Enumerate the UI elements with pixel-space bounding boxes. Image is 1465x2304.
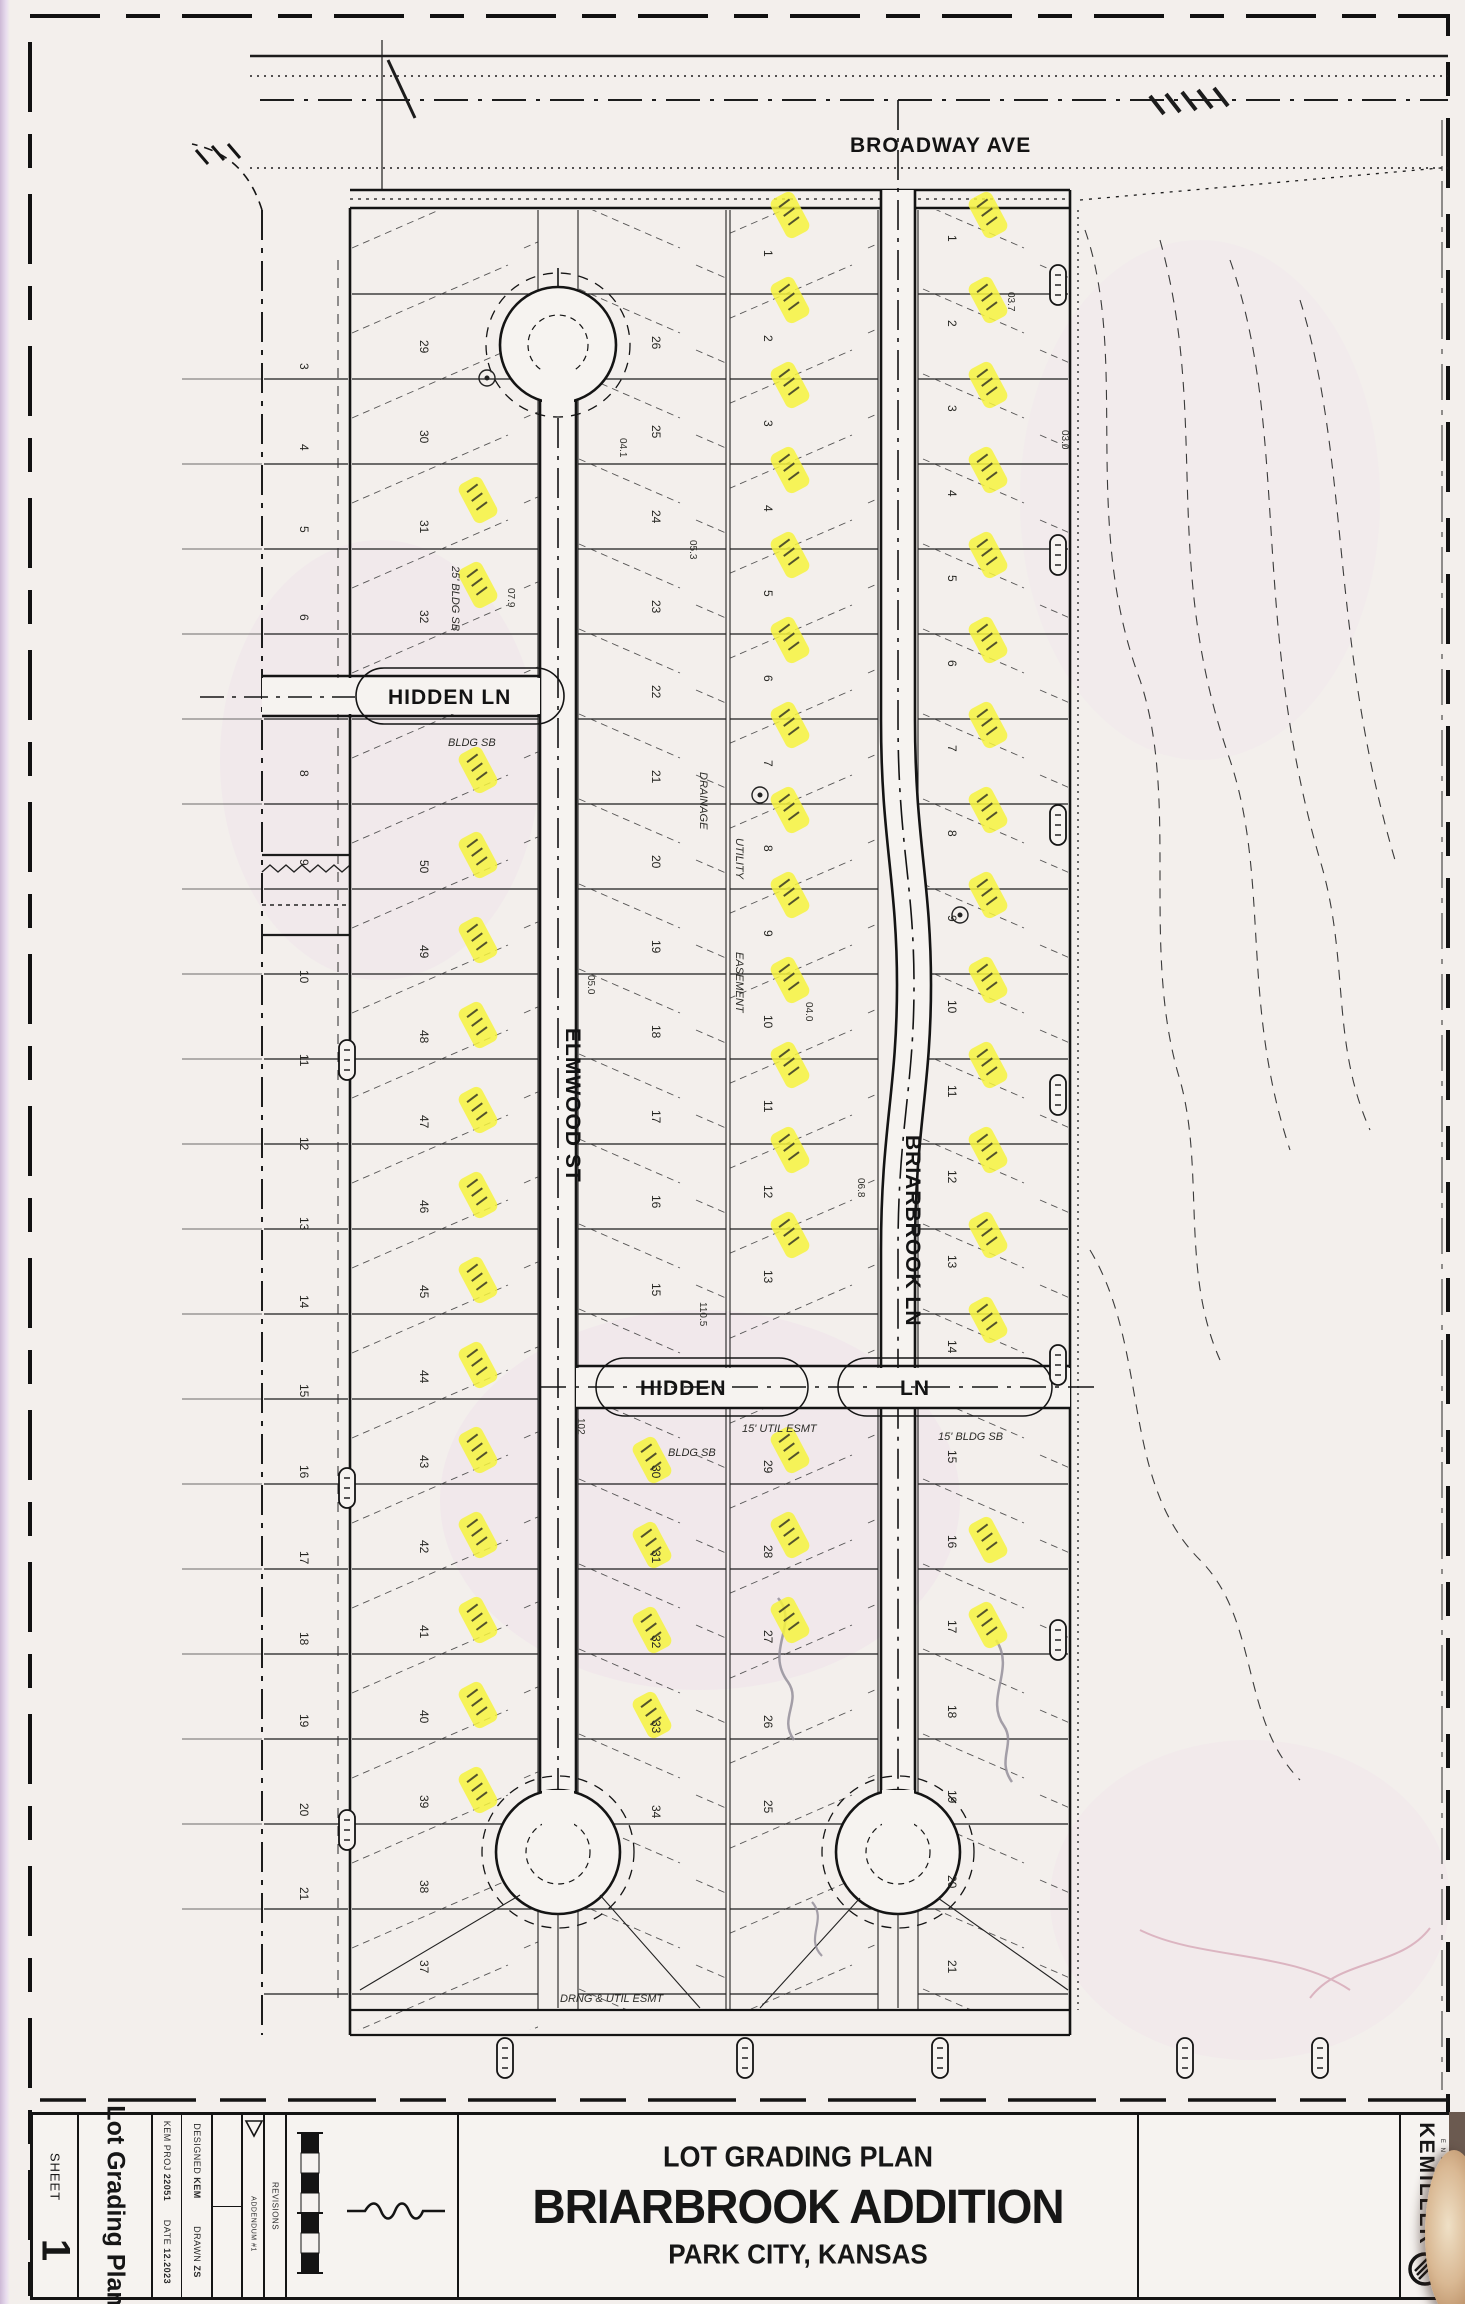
adjacent-lot-number: 15 xyxy=(297,1384,311,1398)
lot-number: 45 xyxy=(417,1285,431,1299)
lot-number: 11 xyxy=(945,1085,959,1098)
title-block: SHEET 1 Lot Grading Plan KEM PROJ 22051 … xyxy=(30,2112,1454,2300)
lot-number: 4 xyxy=(761,505,775,512)
lot-number: 15 xyxy=(649,1283,663,1297)
lot-number: 21 xyxy=(649,770,663,784)
lot-number: 14 xyxy=(945,1340,959,1354)
lot-number: 4 xyxy=(945,490,959,497)
sheet-cell: SHEET 1 xyxy=(33,2115,79,2297)
north-arrow-squiggle xyxy=(347,2204,445,2219)
lot-number: 27 xyxy=(761,1630,775,1644)
ann-drng-util: DRNG & UTIL ESMT xyxy=(560,1993,664,2005)
elevation-oval xyxy=(1177,2038,1193,2078)
scale-cell xyxy=(287,2115,459,2297)
elevation-oval xyxy=(339,1040,355,1080)
adjacent-lot-number: 12 xyxy=(297,1137,311,1151)
adjacent-lot-number: 13 xyxy=(297,1217,311,1231)
street-label-hidden-mid-1: HIDDEN xyxy=(640,1377,727,1400)
lot-grid xyxy=(352,210,1068,2030)
street-label-hidden-mid-2: LN xyxy=(900,1377,930,1400)
scanned-sheet: BROADWAY AVE xyxy=(0,0,1465,2304)
west-adjacent-lots xyxy=(182,210,350,2035)
street-label-hidden-west: HIDDEN LN xyxy=(388,686,511,709)
lot-number: 7 xyxy=(945,745,959,752)
ann-bldg-sb2: BLDG SB xyxy=(668,1447,716,1459)
title-text-cell: LOT GRADING PLAN BRIARBROOK ADDITION PAR… xyxy=(459,2115,1139,2297)
lot-number: 1 xyxy=(761,250,775,257)
lot-number: 16 xyxy=(649,1195,663,1209)
lot-number: 21 xyxy=(945,1960,959,1974)
lot-number: 13 xyxy=(945,1255,959,1269)
spot-elevation: 03.0 xyxy=(1059,430,1070,450)
date-label: DATE xyxy=(162,2219,172,2244)
lot-number: 26 xyxy=(649,336,663,350)
designed-label: DESIGNED xyxy=(192,2123,202,2174)
spot-elevation: 110.5 xyxy=(697,1302,708,1327)
elevation-oval xyxy=(1050,1345,1066,1385)
lot-number: 11 xyxy=(761,1100,775,1113)
elevation-oval xyxy=(339,1810,355,1850)
blank-cell xyxy=(1139,2115,1401,2297)
ann-drainage: DRAINAGE xyxy=(697,772,709,830)
lot-number: 19 xyxy=(649,940,663,954)
adjacent-lot-number: 14 xyxy=(297,1295,311,1309)
lot-number: 32 xyxy=(649,1635,663,1649)
adjacent-lot-number: 18 xyxy=(297,1632,311,1646)
lot-number: 18 xyxy=(945,1705,959,1719)
adjacent-lot-number: 17 xyxy=(297,1551,311,1565)
lot-number: 6 xyxy=(761,675,775,682)
lot-number: 17 xyxy=(945,1620,959,1634)
addendum-text: ADDENDUM #1 xyxy=(250,2196,257,2252)
adjacent-lot-number: 11 xyxy=(297,1054,311,1067)
lot-number: 32 xyxy=(417,610,431,624)
ann-util-esmt: 15' UTIL ESMT xyxy=(742,1423,818,1435)
adjacent-lot-number: 16 xyxy=(297,1465,311,1479)
lot-number: 49 xyxy=(417,945,431,959)
adjacent-lot-number: 9 xyxy=(297,859,311,866)
lot-number: 10 xyxy=(761,1015,775,1029)
elevation-oval xyxy=(1312,2038,1328,2078)
plan-location: PARK CITY, KANSAS xyxy=(668,2238,928,2271)
elevation-oval xyxy=(1050,535,1066,575)
lot-number: 39 xyxy=(417,1795,431,1809)
lot-number: 33 xyxy=(649,1720,663,1734)
lot-number: 26 xyxy=(761,1715,775,1729)
elevation-oval xyxy=(932,2038,948,2078)
adjacent-lot-number: 4 xyxy=(297,444,311,451)
plan-subtitle: LOT GRADING PLAN xyxy=(663,2141,933,2174)
lot-number: 6 xyxy=(945,660,959,667)
lot-number: 25 xyxy=(649,425,663,439)
elevation-oval xyxy=(1050,1075,1066,1115)
spot-elevation: 04.1 xyxy=(617,438,628,458)
lot-number: 30 xyxy=(649,1465,663,1479)
lot-number: 24 xyxy=(649,510,663,524)
lot-number: 23 xyxy=(649,600,663,614)
street-hidden-mid xyxy=(540,1358,1100,1416)
lot-number: 20 xyxy=(649,855,663,869)
street-label-briarbrook: BRIARBROOK LN xyxy=(901,1135,924,1327)
lot-number: 15 xyxy=(945,1450,959,1464)
lot-number: 1 xyxy=(945,235,959,242)
lot-number: 44 xyxy=(417,1370,431,1384)
broadway-ave-corridor xyxy=(250,40,1448,200)
adjacent-lot-number: 10 xyxy=(297,970,311,984)
lot-number: 18 xyxy=(649,1025,663,1039)
lot-number: 42 xyxy=(417,1540,431,1554)
lot-number: 9 xyxy=(945,915,959,922)
adjacent-lot-number: 3 xyxy=(297,363,311,370)
elevation-oval xyxy=(339,1468,355,1508)
ann-bldg-sb: BLDG SB xyxy=(448,737,496,749)
spot-elevation: 102 xyxy=(575,1418,586,1435)
spot-elevation: 04.0 xyxy=(803,1002,814,1022)
spot-elevation: 05.0 xyxy=(585,975,596,995)
lot-number: 7 xyxy=(761,760,775,767)
lot-number: 17 xyxy=(649,1110,663,1124)
spot-elevation: 07.9 xyxy=(505,588,516,608)
revisions-label: REVISIONS xyxy=(271,2182,280,2230)
ann-utility: UTILITY xyxy=(733,838,745,880)
empty-rev-cell xyxy=(213,2115,243,2297)
lot-number: 3 xyxy=(945,405,959,412)
drawn-by: ZS xyxy=(192,2265,202,2278)
proj-label: KEM PROJ xyxy=(162,2120,172,2170)
addendum-triangle-icon xyxy=(244,2119,264,2139)
lot-number: 40 xyxy=(417,1710,431,1724)
lot-number: 16 xyxy=(945,1535,959,1549)
designed-by: KEM xyxy=(192,2177,202,2199)
lot-number: 12 xyxy=(761,1185,775,1199)
date-value: 12.2023 xyxy=(162,2248,172,2284)
street-label-elmwood: ELMWOOD ST xyxy=(561,1028,584,1183)
lot-number: 28 xyxy=(761,1545,775,1559)
lot-number: 41 xyxy=(417,1625,431,1639)
lot-number: 5 xyxy=(761,590,775,597)
lot-number: 19 xyxy=(945,1790,959,1804)
elevation-oval xyxy=(1050,265,1066,305)
adjacent-lot-number: 21 xyxy=(297,1887,311,1901)
lot-number: 13 xyxy=(761,1270,775,1284)
ann-bldg-sb-15: 15' BLDG SB xyxy=(938,1431,1003,1443)
lot-number: 47 xyxy=(417,1115,431,1129)
lot-number: 43 xyxy=(417,1455,431,1469)
adjacent-lot-number: 19 xyxy=(297,1714,311,1728)
lot-grading-plan-drawing: BROADWAY AVE xyxy=(0,0,1465,2304)
lot-number: 25 xyxy=(761,1800,775,1814)
lot-number: 29 xyxy=(417,340,431,354)
lot-number: 31 xyxy=(417,520,431,534)
lot-number: 48 xyxy=(417,1030,431,1044)
side-title-cell: Lot Grading Plan xyxy=(79,2115,153,2297)
lot-number: 22 xyxy=(649,685,663,699)
lot-number: 50 xyxy=(417,860,431,874)
elevation-oval xyxy=(497,2038,513,2078)
spot-elevation: 06.8 xyxy=(855,1178,866,1198)
ann-bldg-sb-25: 25' BLDG SB xyxy=(449,565,461,631)
sheet-number: 1 xyxy=(33,2239,78,2261)
elevation-oval xyxy=(1050,805,1066,845)
lot-number: 10 xyxy=(945,1000,959,1014)
side-title: Lot Grading Plan xyxy=(101,2105,130,2304)
lot-number: 8 xyxy=(945,830,959,837)
drawn-label: DRAWN xyxy=(192,2226,202,2262)
elevation-oval xyxy=(737,2038,753,2078)
adjacent-lot-number: 5 xyxy=(297,526,311,533)
lot-number: 20 xyxy=(945,1875,959,1889)
revisions-cell: REVISIONS xyxy=(265,2115,287,2297)
adjacent-lot-number: 6 xyxy=(297,614,311,621)
lot-number: 9 xyxy=(761,930,775,937)
sheet-label: SHEET xyxy=(48,2153,63,2201)
lot-number: 3 xyxy=(761,420,775,427)
lot-number: 37 xyxy=(417,1960,431,1974)
lot-number: 31 xyxy=(649,1550,663,1564)
graphic-scale-bar xyxy=(287,2115,457,2291)
spot-elevation: 05.3 xyxy=(687,540,698,560)
plan-title: BRIARBROOK ADDITION xyxy=(532,2178,1063,2235)
elevation-oval xyxy=(1050,1620,1066,1660)
lot-number: 8 xyxy=(761,845,775,852)
lot-number: 12 xyxy=(945,1170,959,1184)
adjacent-lot-number: 20 xyxy=(297,1803,311,1817)
lot-number: 29 xyxy=(761,1460,775,1474)
proj-table-cell: KEM PROJ 22051 DESIGNED KEM DATE 12.2023… xyxy=(153,2115,213,2297)
lot-number: 38 xyxy=(417,1880,431,1894)
lot-number: 30 xyxy=(417,430,431,444)
addendum-cell: ADDENDUM #1 xyxy=(243,2115,265,2297)
ann-easement: EASEMENT xyxy=(733,952,745,1014)
spot-elevation: 03.7 xyxy=(1005,292,1016,312)
adjacent-lot-number: 8 xyxy=(297,770,311,777)
proj-number: 22051 xyxy=(162,2173,172,2201)
lot-number: 2 xyxy=(945,320,959,327)
lot-number: 34 xyxy=(649,1805,663,1819)
lot-number: 2 xyxy=(761,335,775,342)
lot-number: 5 xyxy=(945,575,959,582)
street-label-broadway: BROADWAY AVE xyxy=(850,134,1031,157)
lot-number: 46 xyxy=(417,1200,431,1214)
